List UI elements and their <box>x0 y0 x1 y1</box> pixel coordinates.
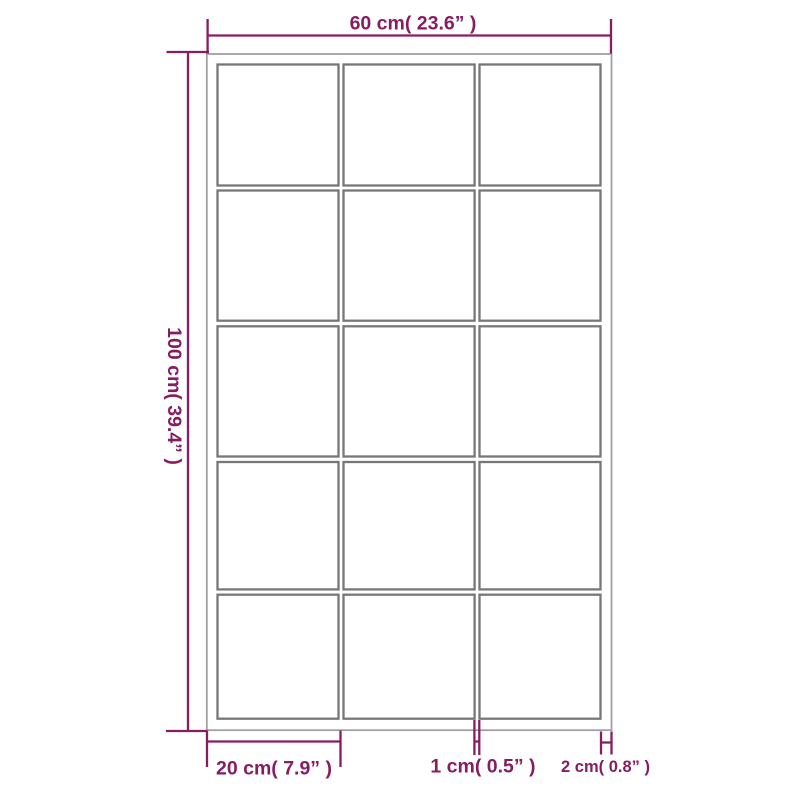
svg-text:100 cm( 39.4” ): 100 cm( 39.4” ) <box>163 327 185 465</box>
svg-text:1 cm( 0.5” ): 1 cm( 0.5” ) <box>430 756 535 778</box>
svg-text:2 cm( 0.8” ): 2 cm( 0.8” ) <box>561 758 650 776</box>
svg-text:20 cm( 7.9” ): 20 cm( 7.9” ) <box>216 758 332 780</box>
svg-text:60 cm( 23.6” ): 60 cm( 23.6” ) <box>350 13 477 35</box>
